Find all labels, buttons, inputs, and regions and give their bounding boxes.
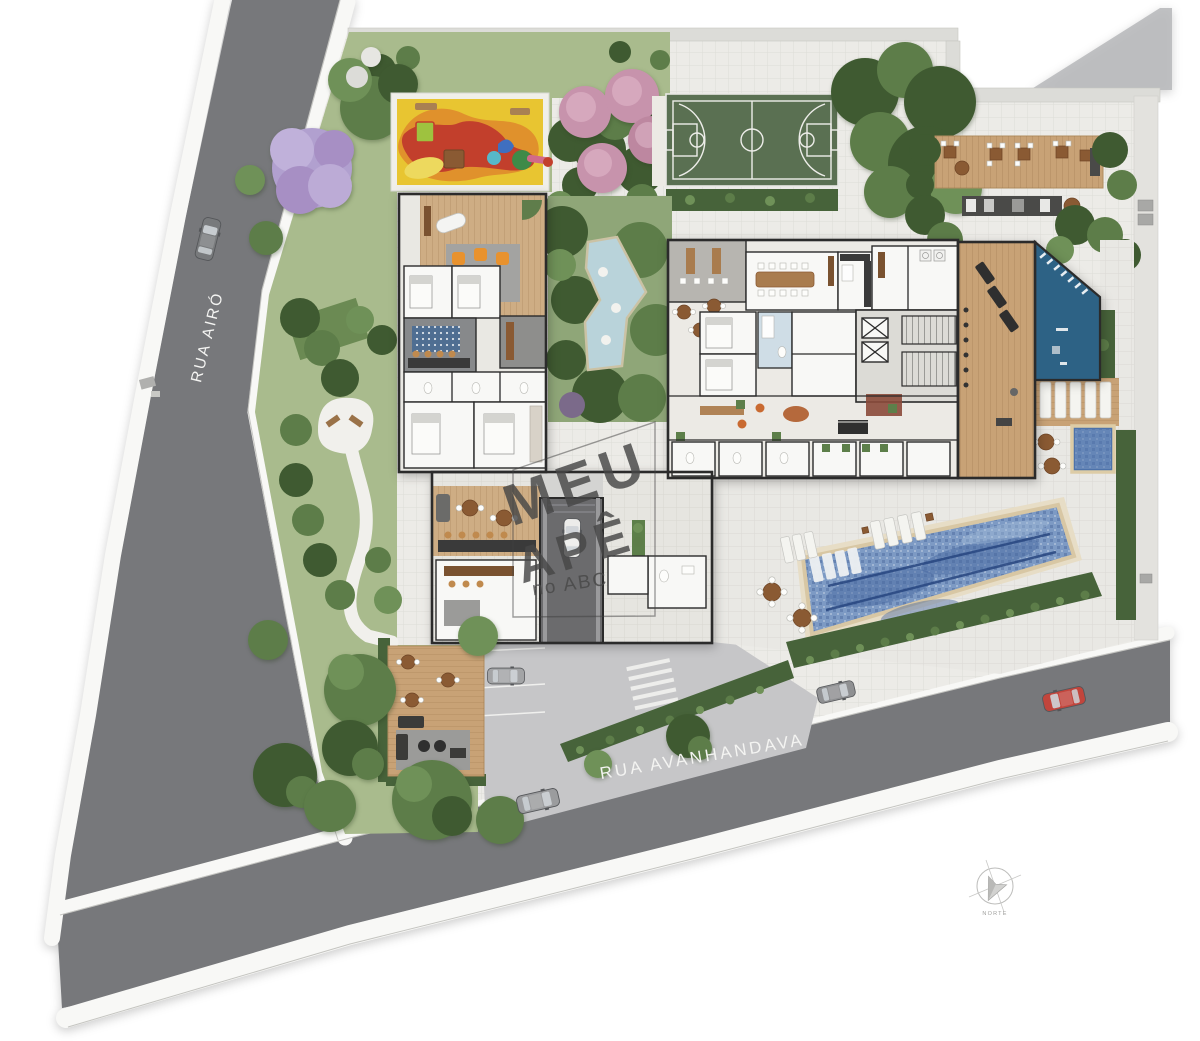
fountain-dot [598,267,608,277]
mosaic-rug [412,326,460,352]
utility-box-right-1 [1138,200,1153,211]
utility-box-right-2 [1138,214,1153,225]
mosaic-counter [408,358,470,368]
garden-plaza [318,398,373,454]
sandbox [444,150,464,168]
play-structure-teal [487,151,501,165]
compass-rose: NORTE [969,860,1021,917]
purple-tree [270,128,354,214]
top-right-road-stub [1030,8,1172,90]
playground [391,93,553,191]
stone-terrace [668,240,746,302]
dining-table [756,272,814,287]
right-service-band [1134,96,1158,640]
lobby-sofa [436,494,450,522]
stairs-2 [902,352,956,386]
pond-garden [536,196,682,423]
perimeter-wall-topright [956,88,1160,102]
lounge-sideboard [424,206,431,236]
spa-loungers [1040,382,1111,418]
playground-bench-2 [510,108,530,115]
lounge-chair-1 [452,252,465,265]
lounge-chair-2 [474,248,487,261]
site-plan: RUA AIRÓ RUA AVANHANDAVA MEU APÊ no ABC … [0,0,1200,1041]
east-hedge [1116,430,1136,620]
play-table [416,122,434,142]
play-slide-end [543,157,553,167]
fountain-dot-3 [601,335,611,345]
fountain-dot-2 [611,303,621,313]
car-driveway [488,666,525,685]
stairs [902,316,956,344]
utility-box-right-3 [1140,574,1152,583]
elevator-core [856,310,958,402]
compass-label: NORTE [982,911,1007,917]
lounge-chair-3 [496,252,509,265]
utility-box-sidewalk-2 [151,391,160,397]
sports-court [652,94,838,211]
playground-bench [415,103,437,110]
site-plan-canvas: RUA AIRÓ RUA AVANHANDAVA MEU APÊ no ABC … [0,0,1200,1041]
